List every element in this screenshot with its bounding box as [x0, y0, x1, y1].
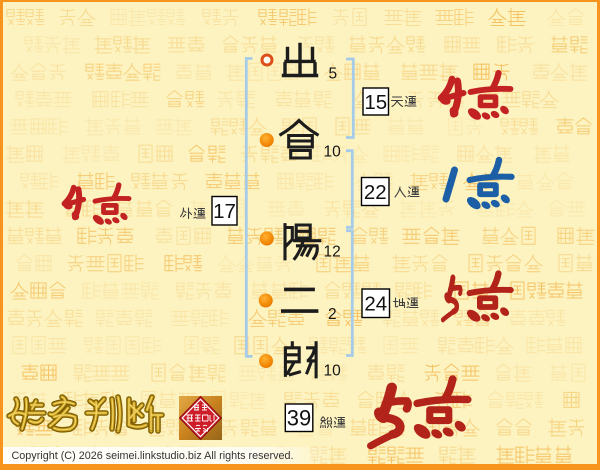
svg-text:2: 2 [328, 306, 337, 323]
svg-text:15: 15 [364, 91, 387, 114]
svg-text:39: 39 [287, 406, 311, 431]
svg-text:17: 17 [213, 200, 236, 223]
svg-text:24: 24 [364, 293, 387, 316]
svg-text:10: 10 [324, 363, 342, 380]
svg-text:5: 5 [329, 66, 338, 83]
svg-text:Copyright (C) 2026 seimei.link: Copyright (C) 2026 seimei.linkstudio.biz… [12, 450, 294, 462]
svg-text:10: 10 [324, 144, 342, 161]
svg-text:12: 12 [324, 244, 341, 261]
svg-text:22: 22 [364, 181, 387, 204]
